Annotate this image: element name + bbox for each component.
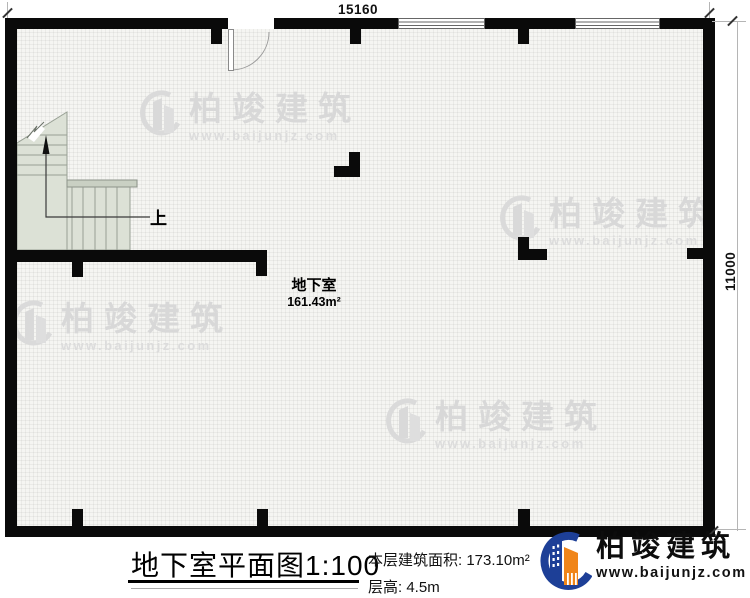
window-symbol bbox=[398, 18, 485, 29]
room-area: 161.43m² bbox=[268, 296, 360, 310]
wall-right bbox=[703, 18, 715, 537]
room-name: 地下室 bbox=[268, 278, 360, 295]
dimension-right: 11000 bbox=[723, 252, 738, 291]
floor-height-stat: 层高: 4.5m bbox=[368, 576, 440, 597]
brand-url: www.baijunjz.com bbox=[596, 565, 747, 581]
room-label: 地下室 161.43m² bbox=[268, 278, 360, 309]
column-stub bbox=[687, 248, 703, 259]
column-stub bbox=[350, 29, 361, 44]
door-swing-arc-icon bbox=[228, 29, 275, 74]
wall-top-segment bbox=[5, 18, 228, 29]
floor-area bbox=[5, 18, 715, 537]
column-stub bbox=[518, 29, 529, 44]
floor-area-label: 本层建筑面积: bbox=[368, 552, 462, 569]
brand-name: 柏竣建筑 bbox=[596, 533, 747, 562]
brand-logo: 柏竣建筑 www.baijunjz.com bbox=[534, 529, 747, 595]
building-swoosh-logo-icon bbox=[534, 529, 592, 595]
title-underline bbox=[128, 580, 359, 583]
floor-height-value: 4.5m bbox=[406, 579, 439, 596]
wall-top-segment bbox=[274, 18, 398, 29]
wall-interior bbox=[5, 250, 267, 262]
column-stub bbox=[518, 509, 530, 526]
floor-height-label: 层高: bbox=[368, 579, 402, 596]
drawing-title: 地下室平面图1:100 bbox=[131, 544, 380, 584]
stair-up-label: 上 bbox=[150, 204, 167, 229]
floor-area-value: 173.10m² bbox=[466, 552, 529, 569]
column-stub bbox=[72, 509, 83, 526]
window-symbol bbox=[575, 18, 660, 29]
l-column bbox=[334, 166, 360, 177]
wall-top-segment bbox=[658, 18, 715, 29]
column-stub bbox=[257, 509, 268, 526]
floor-plan-canvas: 柏竣建筑 www.baijunjz.com 柏竣建筑 www.baijunjz.… bbox=[0, 0, 750, 598]
floor-area-stat: 本层建筑面积: 173.10m² bbox=[368, 549, 530, 570]
column-stub bbox=[256, 262, 267, 276]
wall-left bbox=[5, 18, 17, 537]
drawing-title-text: 地下室平面图 bbox=[131, 550, 305, 581]
dimension-top: 15160 bbox=[338, 2, 378, 17]
title-underline-thin bbox=[131, 588, 358, 589]
column-stub bbox=[211, 29, 222, 44]
wall-top-segment bbox=[483, 18, 575, 29]
column-stub bbox=[72, 262, 83, 277]
staircase bbox=[17, 105, 167, 250]
l-column bbox=[518, 249, 547, 260]
door-opening bbox=[228, 18, 274, 29]
